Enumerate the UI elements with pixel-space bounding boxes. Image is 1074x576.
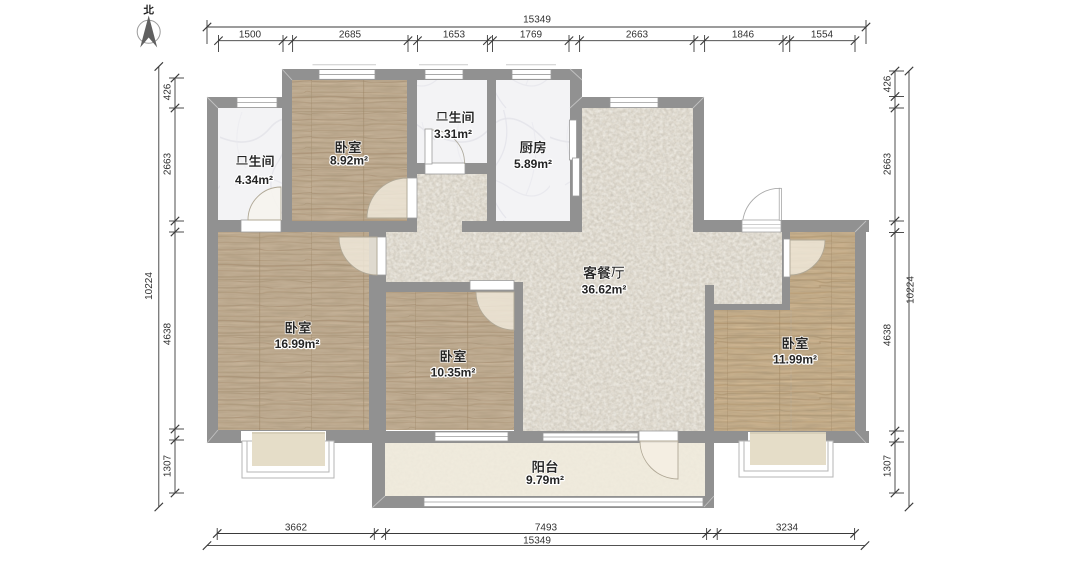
svg-text:3234: 3234 <box>776 523 799 534</box>
svg-text:1307: 1307 <box>883 454 894 477</box>
svg-text:1653: 1653 <box>443 30 466 41</box>
svg-text:3.31m²: 3.31m² <box>434 127 472 141</box>
svg-text:8.92m²: 8.92m² <box>330 154 368 168</box>
svg-text:1307: 1307 <box>163 454 174 477</box>
svg-text:15349: 15349 <box>523 536 551 547</box>
svg-text:1846: 1846 <box>732 30 755 41</box>
svg-text:36.62m²: 36.62m² <box>582 283 627 297</box>
svg-text:2685: 2685 <box>339 30 362 41</box>
svg-text:10224: 10224 <box>144 272 155 300</box>
svg-text:7493: 7493 <box>535 523 558 534</box>
svg-text:1554: 1554 <box>811 30 834 41</box>
svg-text:10.35m²: 10.35m² <box>431 366 476 380</box>
svg-text:2663: 2663 <box>163 152 174 175</box>
svg-text:15349: 15349 <box>523 15 551 26</box>
svg-text:1500: 1500 <box>239 30 262 41</box>
svg-text:11.99m²: 11.99m² <box>773 353 817 367</box>
svg-text:4638: 4638 <box>163 322 174 345</box>
svg-text:2663: 2663 <box>883 152 894 175</box>
svg-text:3662: 3662 <box>285 523 308 534</box>
svg-text:5.89m²: 5.89m² <box>514 157 552 171</box>
svg-text:4.34m²: 4.34m² <box>235 173 273 187</box>
svg-text:426: 426 <box>883 75 894 92</box>
svg-text:426: 426 <box>163 83 174 100</box>
svg-text:2663: 2663 <box>626 30 649 41</box>
svg-text:16.99m²: 16.99m² <box>275 337 320 351</box>
svg-text:4638: 4638 <box>883 323 894 346</box>
svg-text:9.79m²: 9.79m² <box>526 473 564 487</box>
svg-text:10224: 10224 <box>906 276 917 304</box>
svg-text:1769: 1769 <box>520 30 543 41</box>
